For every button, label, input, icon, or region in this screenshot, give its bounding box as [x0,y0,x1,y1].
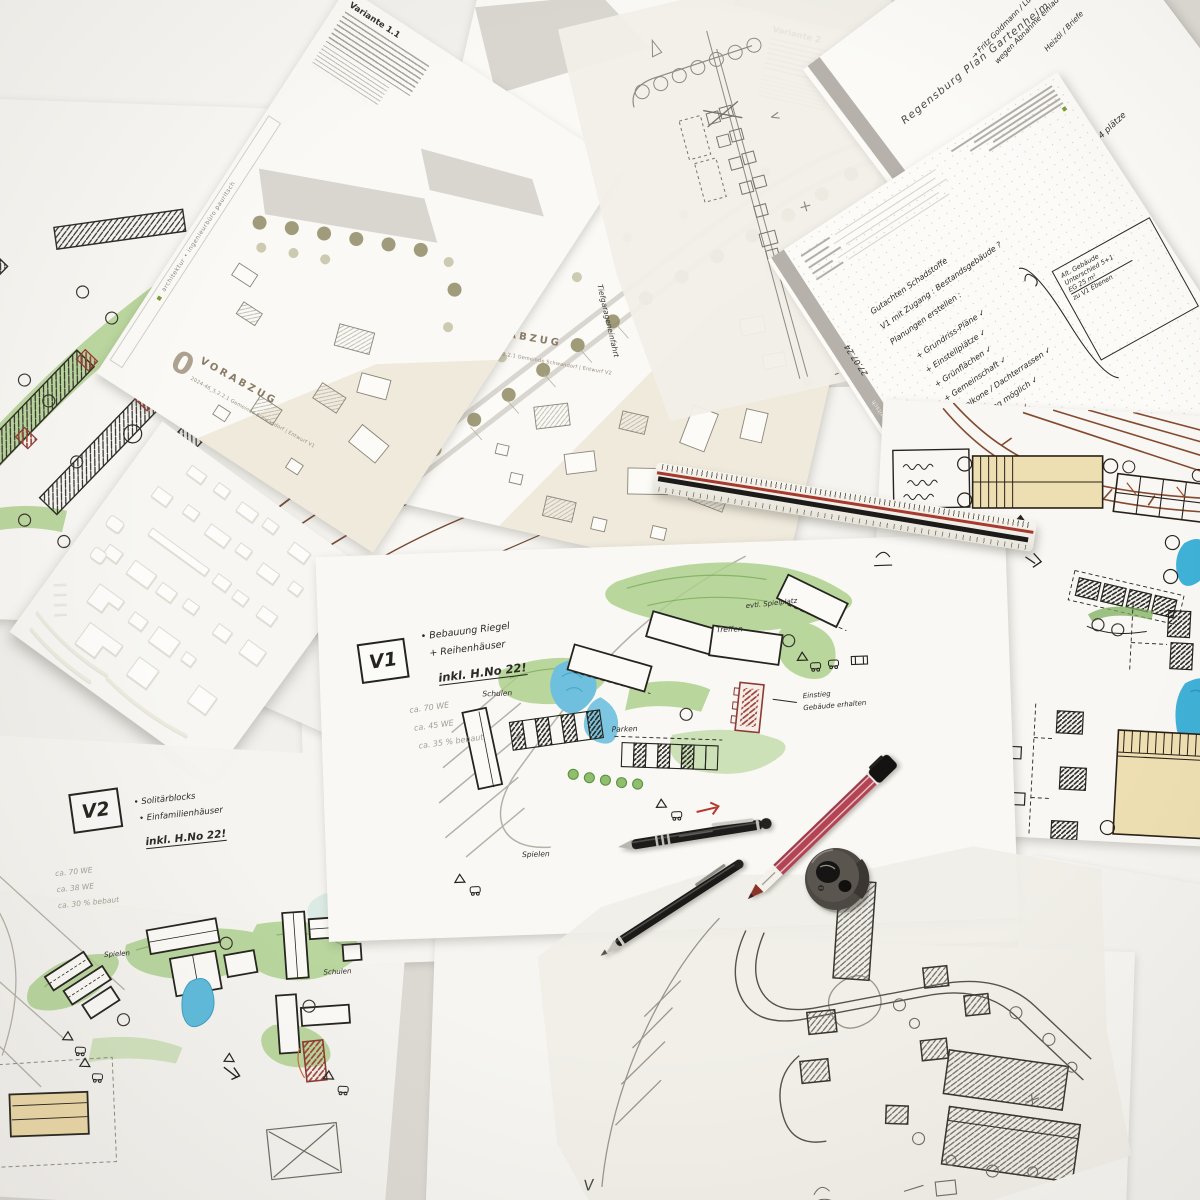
v1-label-parking: Parken [612,724,638,734]
brand-green-square [156,295,162,301]
legend-box [893,449,970,508]
parking-row [1068,571,1184,625]
pencil-roads [731,896,1097,1149]
v1-tag: V1 [368,648,399,674]
v1-label-play: Spielen [522,849,550,859]
notepad-front-head2: V1 mit Zugang : Bestandsgebäude ? [879,240,1004,331]
v1-label-school: Schulen [482,688,512,698]
green-scribble [1086,609,1152,637]
contact-green-dot [1062,106,1068,112]
v1-tag-box: V1 [357,638,410,684]
v1-label-meet: Treffen [716,624,743,634]
notepad-back-note3: Heizöl / Briefe [1042,9,1085,53]
pencil-sharpener [800,845,874,917]
tan-building-big [1100,729,1200,839]
grid-building-top [1113,460,1200,525]
notepad-back-note4: 4 plätze [1097,110,1129,141]
architects-desk-photo: 9 [0,0,1200,1200]
bottom-sketch-mark: V [583,1176,595,1195]
v2-label-school: Schulen [323,967,351,976]
ponds [1155,535,1200,747]
v1-red-tower [730,682,764,733]
tan-building-top [958,456,1118,508]
hatched-squares-left [1003,702,1090,840]
